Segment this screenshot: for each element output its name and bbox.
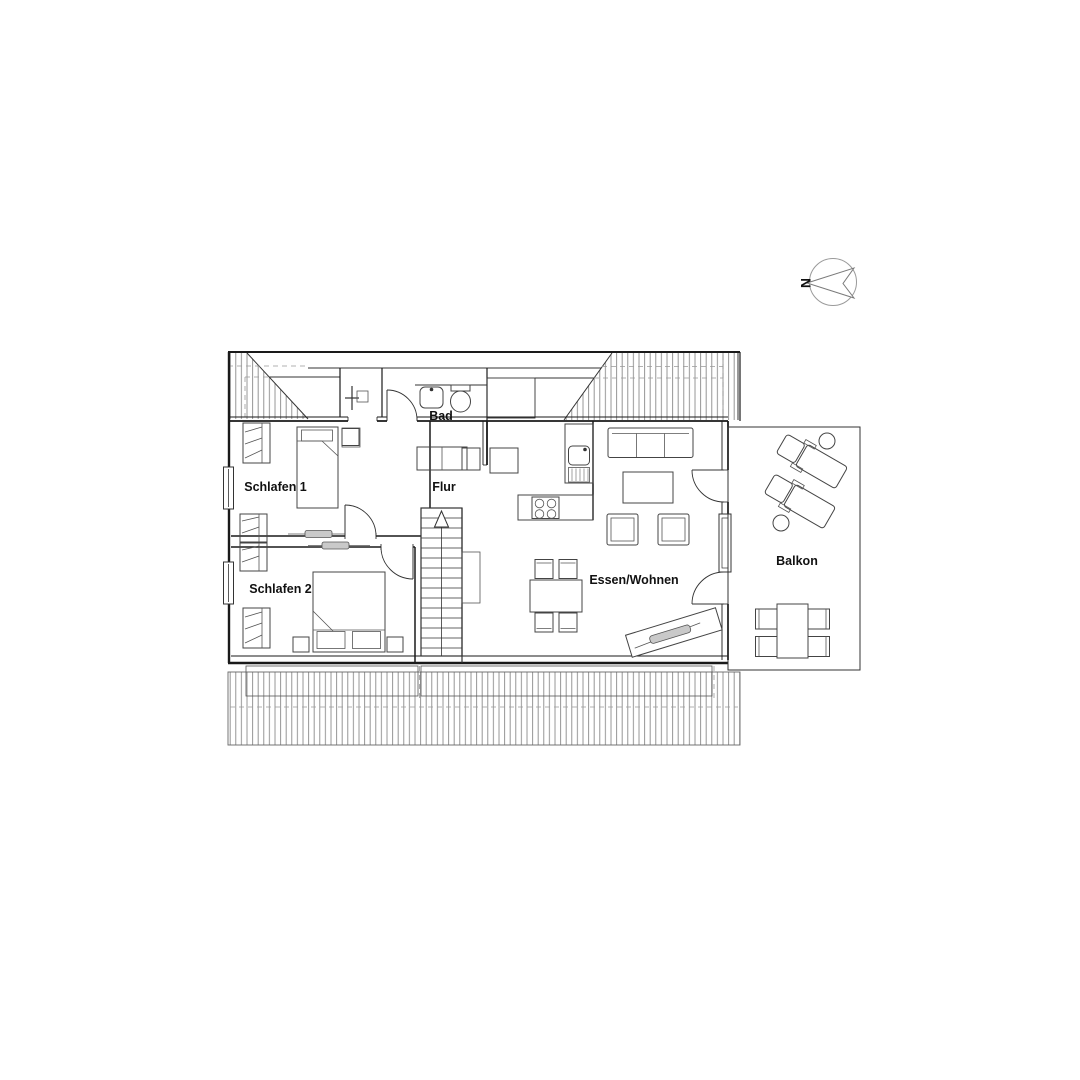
kitchen-sink (569, 446, 590, 465)
wardrobe-1b (240, 514, 267, 542)
nightstand (387, 637, 403, 652)
washbasin (420, 387, 443, 408)
roof-hatch-bottom (228, 666, 740, 745)
living-furniture (530, 428, 693, 632)
north-label: N (798, 278, 814, 288)
label-flur: Flur (432, 480, 456, 494)
door-balcony-north (692, 470, 724, 502)
lounger (774, 430, 849, 491)
balcony-dining-set (756, 604, 830, 658)
door-schlafen2 (381, 547, 413, 579)
dining-set (530, 560, 582, 633)
stairs-landing (462, 552, 480, 603)
window-schlafen2 (224, 562, 234, 604)
label-schlafen2: Schlafen 2 (249, 582, 312, 596)
roof-room-outline (487, 378, 535, 418)
armchair (658, 514, 689, 545)
nightstand (293, 637, 309, 652)
schlafen2-furniture (240, 543, 403, 652)
kitchen-counter-east (565, 424, 593, 483)
label-essen-wohnen: Essen/Wohnen (589, 573, 678, 587)
label-balkon: Balkon (776, 554, 818, 568)
flur-furniture (342, 428, 480, 470)
balcony (728, 427, 860, 670)
bed-single (297, 427, 338, 508)
wardrobe-1a (243, 423, 270, 463)
bathroom-fixtures (420, 385, 471, 412)
label-bad: Bad (429, 409, 453, 423)
window-living-east (719, 514, 731, 572)
stairs (421, 508, 480, 663)
room-labels: Schlafen 1 Schlafen 2 Bad Flur Essen/Woh… (244, 409, 818, 596)
doors (288, 390, 724, 657)
floorplan-canvas: N (0, 0, 1080, 1080)
sliding-door-schlafen2 (308, 542, 370, 549)
label-schlafen1: Schlafen 1 (244, 480, 307, 494)
coffee-table (623, 472, 673, 503)
nightstand (342, 429, 359, 446)
kitchen-cupboard (490, 448, 518, 473)
toilet (451, 385, 471, 412)
window-schlafen1 (224, 467, 234, 509)
door-schlafen1 (345, 505, 376, 536)
kitchen-stove (532, 497, 559, 519)
kitchen (490, 424, 593, 520)
kitchen-dishwasher (569, 468, 590, 483)
planter (773, 515, 789, 531)
door-bad (387, 390, 417, 420)
planter (819, 433, 835, 449)
roof-hatch-right (564, 353, 738, 420)
technical-fixture (345, 386, 368, 410)
floorplan-svg: N (0, 0, 1080, 1080)
door-balcony-south (692, 572, 724, 604)
bed-double (313, 572, 385, 652)
sliding-door-living (626, 608, 723, 657)
armchair (607, 514, 638, 545)
roof-hatch-left (228, 353, 308, 419)
sofa (608, 428, 693, 458)
north-indicator: N (798, 259, 857, 306)
wardrobe-2b (243, 608, 270, 648)
